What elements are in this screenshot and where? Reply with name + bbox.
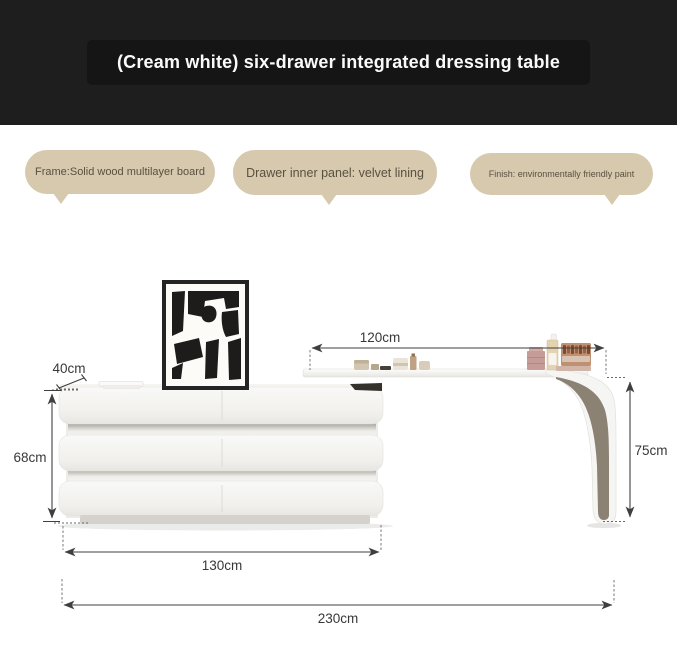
art-frame [164,282,247,390]
cosmetics-left-group [354,354,430,371]
dimension-label-68cm: 68cm [13,450,46,465]
dimension-label-120cm: 120cm [360,330,401,345]
dimension-label-40cm: 40cm [52,361,85,376]
table-leg [546,369,616,524]
cosmetics-right-group [527,334,591,371]
books-decor [99,382,143,389]
product-scene: 40cm 68cm 120cm [0,0,677,672]
dimension-label-75cm: 75cm [634,443,667,458]
dimension-overall-length: 230cm [62,579,614,626]
dresser-cabinet [59,383,383,524]
tabletop [303,369,588,377]
product-infographic: (Cream white) six-drawer integrated dres… [0,0,677,672]
drawer-tier-2 [59,435,383,471]
cabinet-plinth [80,515,370,524]
drawer-tier-1 [59,387,383,424]
dimension-label-230cm: 230cm [318,611,359,626]
dimension-label-130cm: 130cm [202,558,243,573]
dimension-cabinet-length: 130cm [63,525,381,573]
drawer-tier-3 [59,481,383,516]
